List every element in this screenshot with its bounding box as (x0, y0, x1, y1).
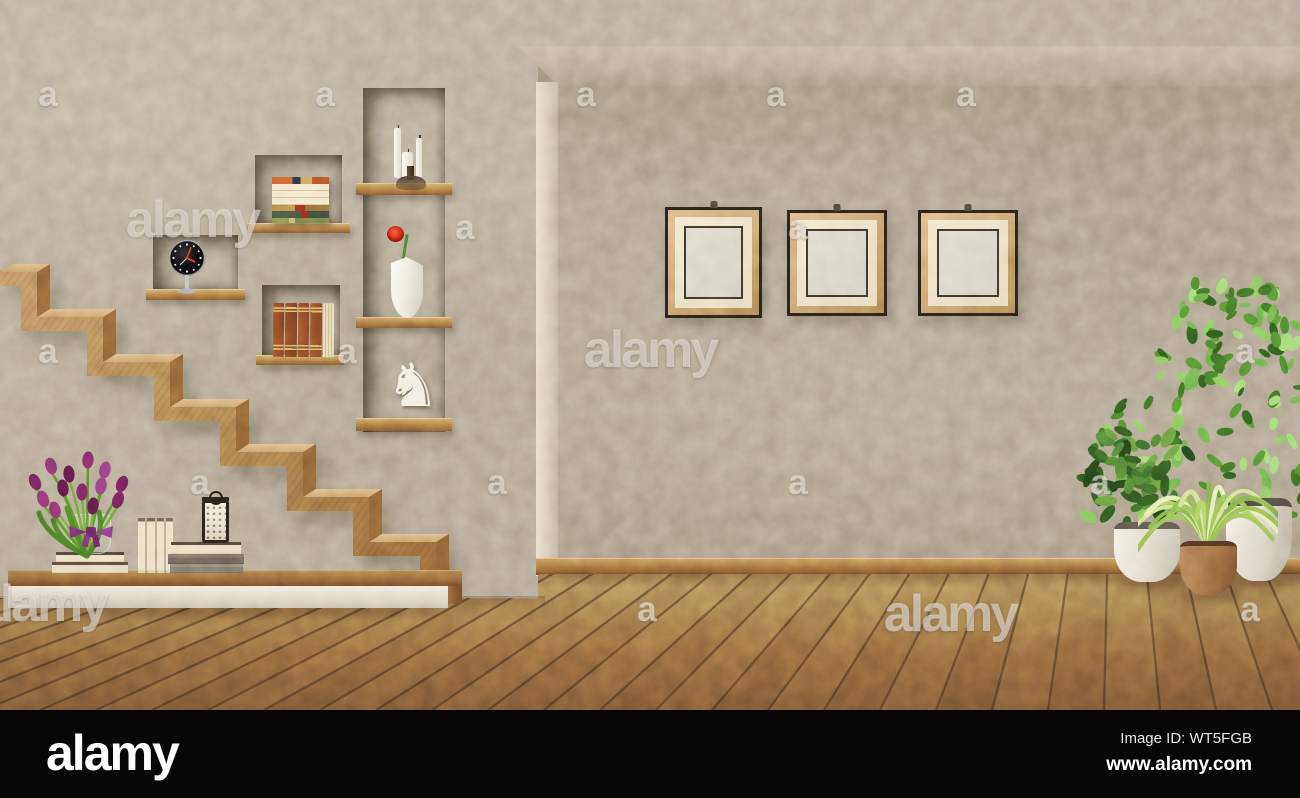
spider-plant (1138, 408, 1278, 560)
purple-ribbon-bow (69, 523, 113, 541)
tulip-bouquet (25, 450, 155, 562)
alamy-website-text: www.alamy.com (1106, 754, 1252, 776)
stock-photo-living-room: ♞ (0, 0, 1300, 798)
terracotta-plant-pot (1180, 541, 1237, 595)
alamy-footer-bar: alamy Image ID: WT5FGB www.alamy.com (0, 710, 1300, 798)
candle-lantern (202, 500, 229, 543)
bench-white-base (8, 586, 448, 608)
image-id-text: Image ID: WT5FGB (1106, 730, 1252, 747)
alamy-logo: alamy (46, 724, 178, 782)
book-stack-under-lantern (168, 542, 244, 573)
